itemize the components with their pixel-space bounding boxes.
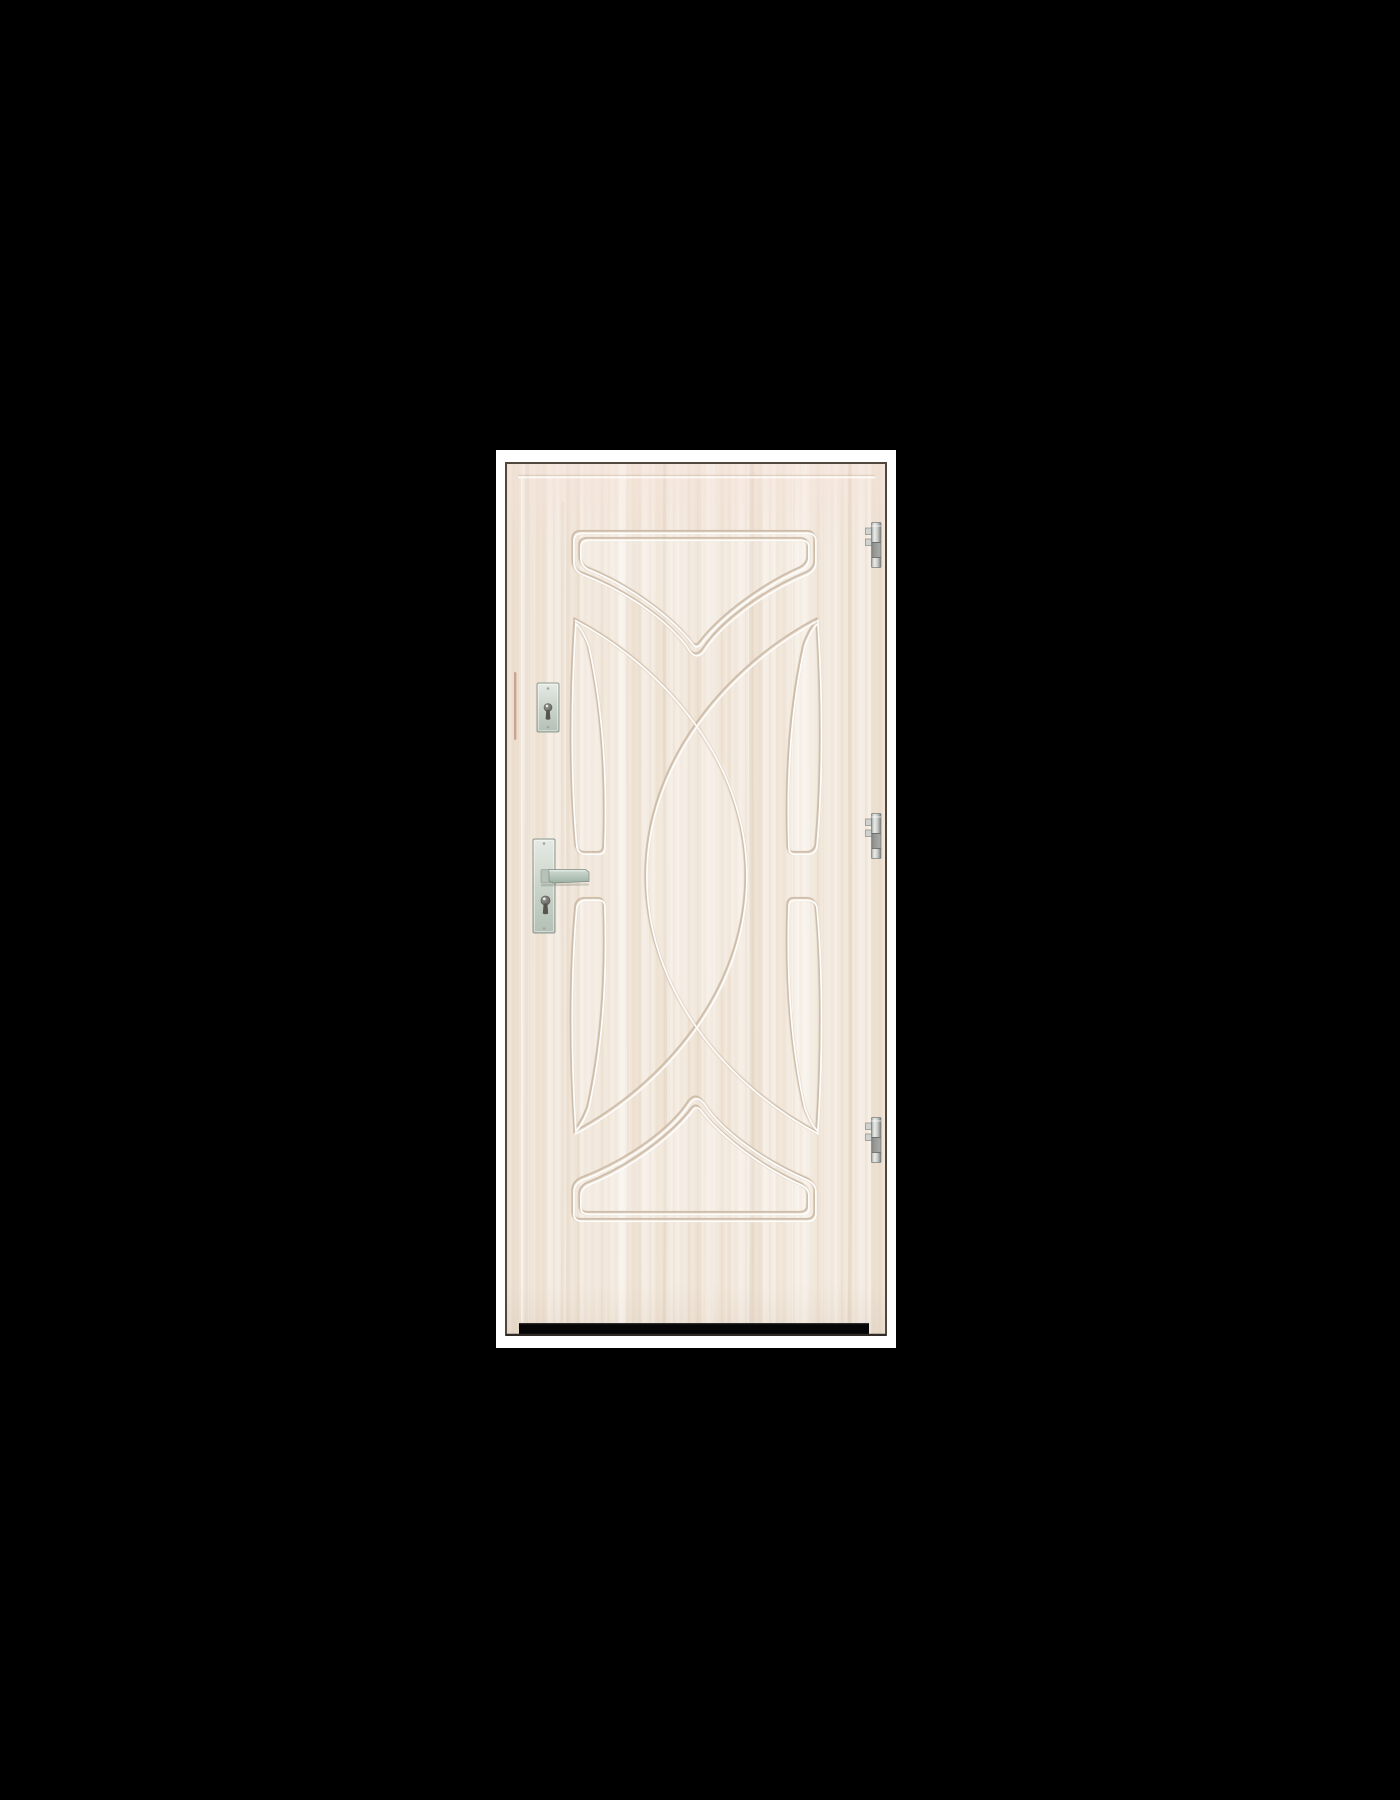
- edge-seal-line: [514, 672, 516, 740]
- lever-shadow: [541, 884, 589, 887]
- pattern-panel-fills: [571, 532, 820, 1220]
- door-artwork: [505, 462, 887, 1336]
- hinge-bottom: [866, 1118, 882, 1163]
- right-rebate-highlight-line: [869, 477, 870, 1322]
- hinge-top: [866, 523, 882, 568]
- threshold-strip: [519, 1323, 869, 1335]
- door: [505, 462, 887, 1336]
- product-photo: [496, 450, 896, 1348]
- screw-icon: [543, 842, 546, 845]
- screw-icon: [547, 726, 550, 729]
- lever-handle: [549, 870, 589, 884]
- top-chevron-panel: [573, 532, 815, 655]
- central-oval-panel: [646, 726, 746, 1026]
- bottom-chevron-panel: [573, 1098, 815, 1221]
- top-rebate-highlight-line: [518, 477, 875, 479]
- left-rebate-highlight-line: [521, 477, 523, 1322]
- top-rebate-shadow-line: [518, 475, 875, 476]
- page-background: { "scene": { "background_color": "#00000…: [0, 0, 1400, 1800]
- screw-icon: [547, 687, 550, 690]
- hinge-middle: [866, 814, 882, 859]
- screw-icon: [543, 927, 546, 930]
- deadbolt-escutcheon: [537, 683, 559, 732]
